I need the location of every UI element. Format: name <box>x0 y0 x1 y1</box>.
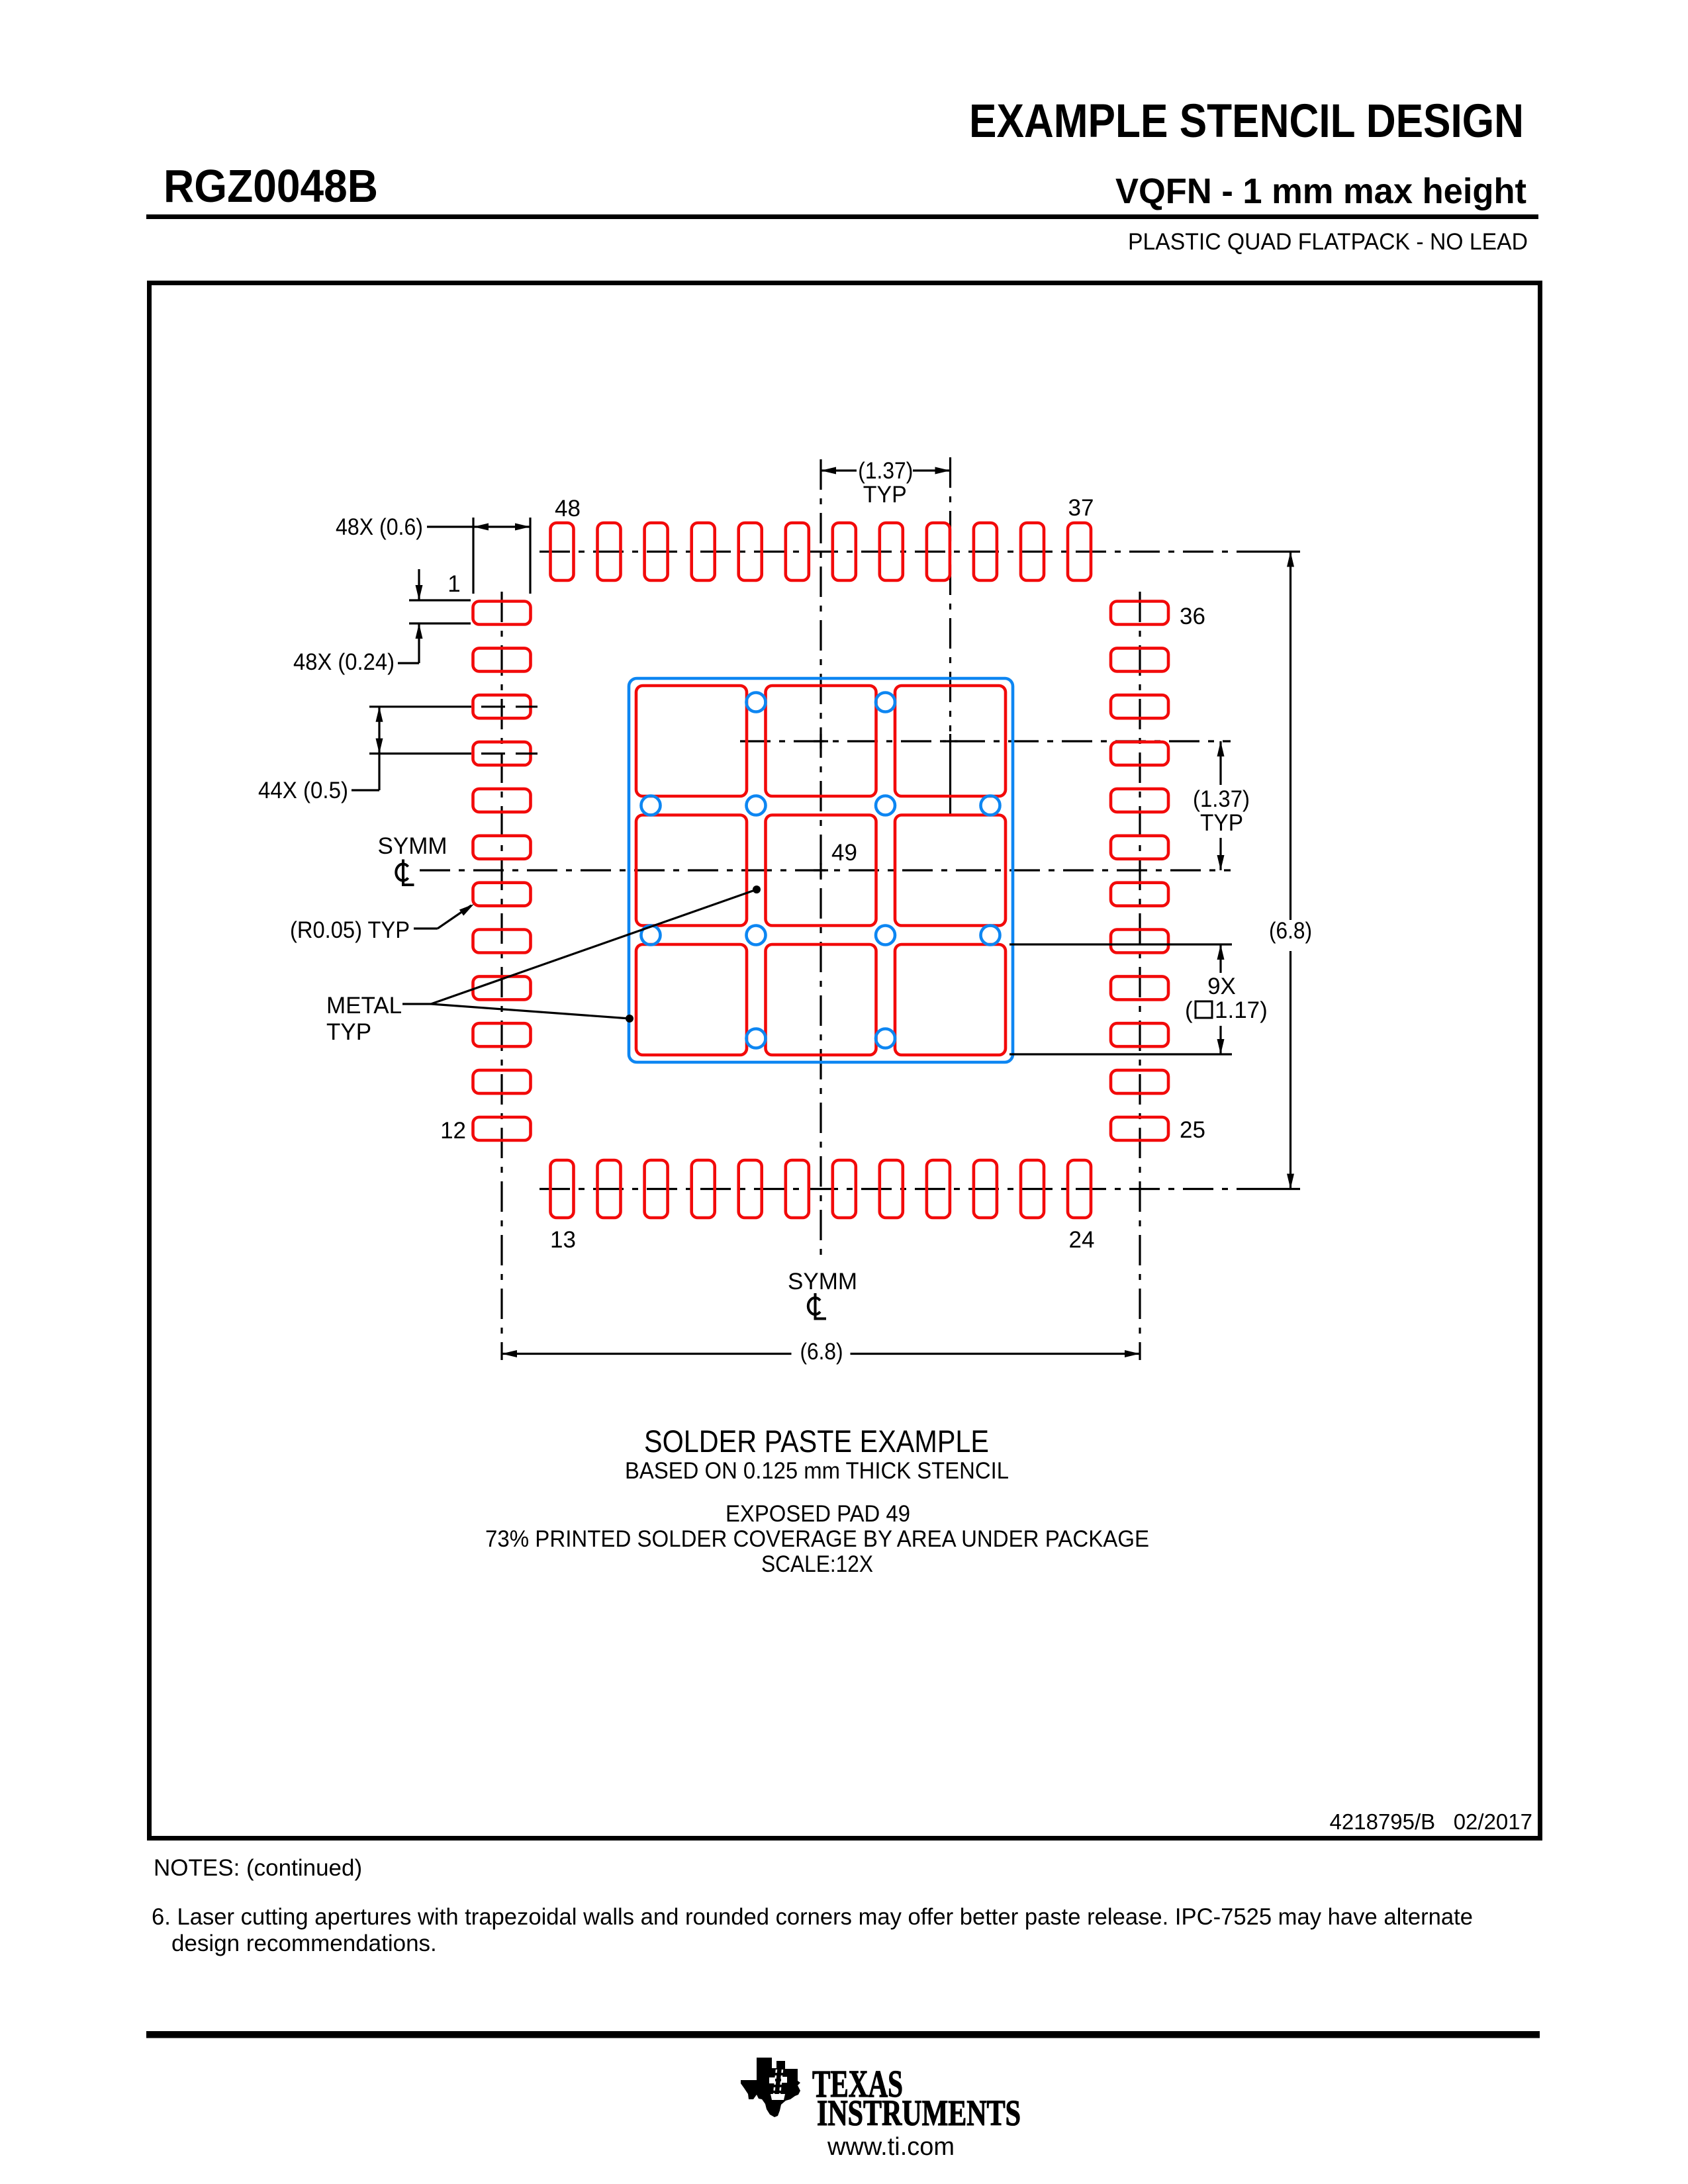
svg-text:(: ( <box>1185 997 1193 1023</box>
svg-text:TYP: TYP <box>1200 810 1243 836</box>
svg-text:37: 37 <box>1068 495 1094 521</box>
svg-text:(R0.05) TYP: (R0.05) TYP <box>290 917 410 943</box>
svg-text:(6.8): (6.8) <box>800 1339 843 1365</box>
svg-text:(6.8): (6.8) <box>1269 918 1312 944</box>
svg-text:13: 13 <box>550 1227 576 1253</box>
svg-text:SYMM: SYMM <box>788 1269 857 1295</box>
svg-text:1.17): 1.17) <box>1215 997 1268 1023</box>
svg-text:www.ti.com: www.ti.com <box>827 2133 955 2161</box>
svg-text:VQFN - 1 mm max height: VQFN - 1 mm max height <box>1115 171 1526 211</box>
svg-text:(1.37): (1.37) <box>1193 786 1250 812</box>
svg-text:48X (0.24): 48X (0.24) <box>293 649 395 675</box>
svg-text:73% PRINTED SOLDER COVERAGE BY: 73% PRINTED SOLDER COVERAGE BY AREA UNDE… <box>485 1526 1149 1552</box>
svg-text:PLASTIC QUAD FLATPACK - NO LEA: PLASTIC QUAD FLATPACK - NO LEAD <box>1128 229 1528 255</box>
svg-text:25: 25 <box>1180 1117 1205 1143</box>
svg-text:36: 36 <box>1180 604 1205 629</box>
svg-text:design recommendations.: design recommendations. <box>171 1931 437 1956</box>
svg-text:SOLDER PASTE EXAMPLE: SOLDER PASTE EXAMPLE <box>644 1424 989 1459</box>
svg-text:9X: 9X <box>1207 974 1236 999</box>
svg-text:RGZ0048B: RGZ0048B <box>164 160 378 212</box>
svg-text:1: 1 <box>447 571 460 597</box>
svg-text:TYP: TYP <box>326 1019 371 1045</box>
svg-text:SCALE:12X: SCALE:12X <box>761 1551 873 1577</box>
svg-text:TYP: TYP <box>863 482 907 508</box>
svg-text:49: 49 <box>831 840 857 866</box>
svg-text:24: 24 <box>1069 1227 1095 1253</box>
svg-text:BASED ON 0.125 mm THICK STENCI: BASED ON 0.125 mm THICK STENCIL <box>625 1458 1009 1484</box>
svg-text:EXAMPLE STENCIL DESIGN: EXAMPLE STENCIL DESIGN <box>969 95 1524 148</box>
svg-text:(1.37): (1.37) <box>858 458 913 484</box>
svg-text:12: 12 <box>440 1118 466 1144</box>
svg-text:48: 48 <box>555 496 581 522</box>
svg-text:44X (0.5): 44X (0.5) <box>258 778 348 803</box>
svg-text:SYMM: SYMM <box>378 833 447 859</box>
svg-text:INSTRUMENTS: INSTRUMENTS <box>817 2093 1021 2133</box>
svg-text:6. Laser cutting apertures wit: 6. Laser cutting apertures with trapezoi… <box>152 1904 1473 1930</box>
svg-text:METAL: METAL <box>326 993 402 1019</box>
svg-text:EXPOSED PAD 49: EXPOSED PAD 49 <box>726 1501 910 1527</box>
svg-text:4218795/B 02/2017: 4218795/B 02/2017 <box>1330 1809 1532 1834</box>
svg-text:NOTES: (continued): NOTES: (continued) <box>154 1855 362 1881</box>
svg-text:48X (0.6): 48X (0.6) <box>336 514 423 540</box>
